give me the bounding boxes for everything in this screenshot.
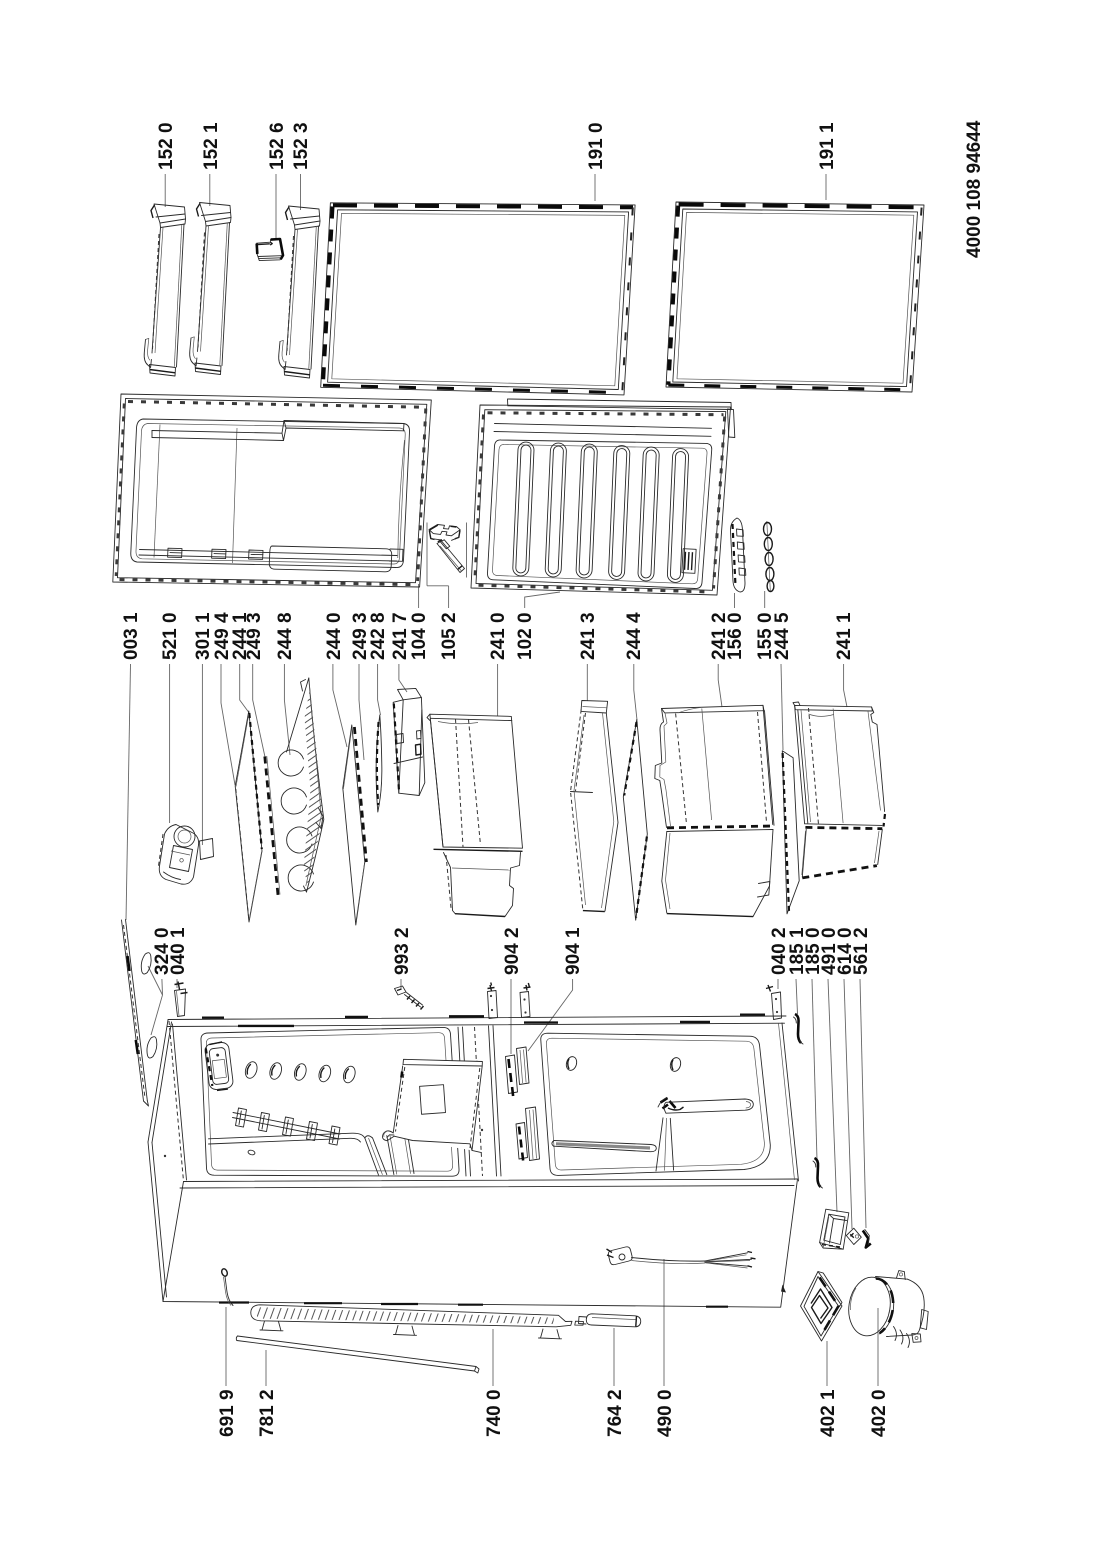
svg-text:402 0: 402 0	[869, 1389, 890, 1437]
svg-text:102 0: 102 0	[515, 612, 536, 660]
svg-text:993 2: 993 2	[392, 927, 413, 975]
svg-text:244 0: 244 0	[324, 612, 345, 660]
svg-text:764 2: 764 2	[605, 1389, 626, 1437]
svg-text:241 3: 241 3	[578, 612, 599, 660]
svg-text:904 2: 904 2	[502, 927, 523, 975]
svg-text:244 4: 244 4	[624, 612, 645, 660]
svg-text:781 2: 781 2	[257, 1389, 278, 1437]
svg-text:4000 108 94644: 4000 108 94644	[964, 120, 985, 258]
svg-text:152 1: 152 1	[201, 122, 222, 170]
svg-text:152 3: 152 3	[291, 122, 312, 170]
svg-text:152 0: 152 0	[156, 122, 177, 170]
svg-text:003 1: 003 1	[121, 612, 142, 660]
svg-text:249 3: 249 3	[244, 612, 265, 660]
svg-text:152 6: 152 6	[267, 122, 288, 170]
svg-text:191 1: 191 1	[817, 122, 838, 170]
svg-text:561 2: 561 2	[851, 927, 872, 975]
svg-text:241 7: 241 7	[390, 612, 411, 660]
svg-text:740 0: 740 0	[484, 1389, 505, 1437]
svg-text:156 0: 156 0	[725, 612, 746, 660]
svg-text:241 0: 241 0	[488, 612, 509, 660]
svg-text:301 1: 301 1	[193, 612, 214, 660]
svg-text:691 9: 691 9	[217, 1389, 238, 1437]
svg-text:040 1: 040 1	[168, 927, 189, 975]
svg-text:244 5: 244 5	[772, 612, 793, 660]
svg-text:241 1: 241 1	[834, 612, 855, 660]
svg-text:244 8: 244 8	[275, 612, 296, 660]
svg-text:402 1: 402 1	[818, 1389, 839, 1437]
svg-text:242 8: 242 8	[368, 612, 389, 660]
svg-text:191 0: 191 0	[586, 122, 607, 170]
svg-text:521 0: 521 0	[160, 612, 181, 660]
svg-text:104 0: 104 0	[409, 612, 430, 660]
svg-text:904 1: 904 1	[563, 927, 584, 975]
svg-text:105 2: 105 2	[439, 612, 460, 660]
svg-text:490 0: 490 0	[655, 1389, 676, 1437]
